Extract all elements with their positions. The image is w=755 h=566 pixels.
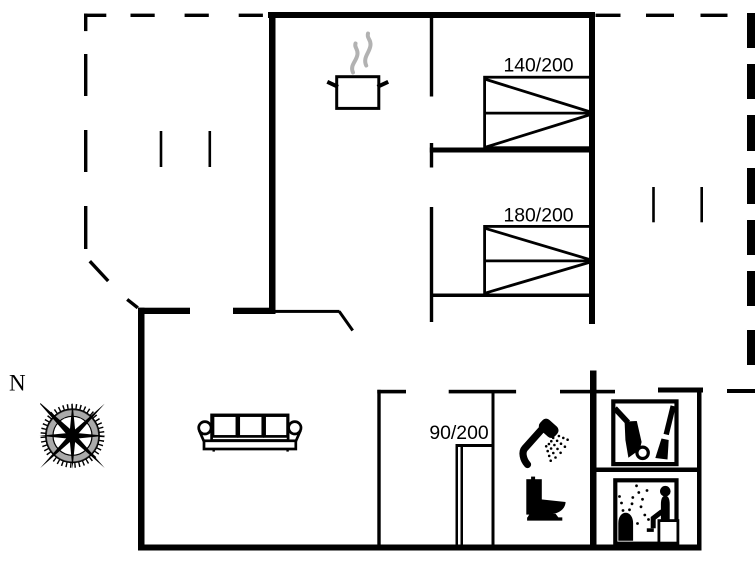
svg-text:90/200: 90/200 xyxy=(429,422,489,444)
svg-text:140/200: 140/200 xyxy=(503,55,573,77)
svg-text:180/200: 180/200 xyxy=(503,205,573,227)
svg-text:N: N xyxy=(9,371,26,396)
